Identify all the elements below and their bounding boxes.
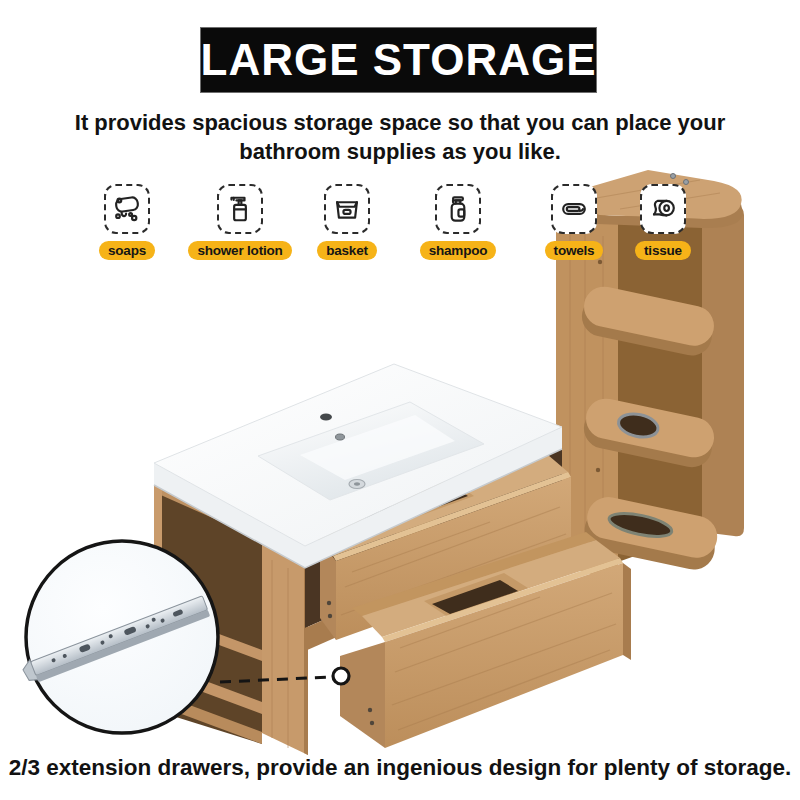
callout-dot <box>333 668 349 684</box>
banner-title: LARGE STORAGE <box>201 35 597 85</box>
soap-icon <box>104 184 150 234</box>
feature-label: shampoo <box>420 241 497 260</box>
lotion-bottle-icon <box>217 184 263 234</box>
feature-label: towels <box>545 241 604 260</box>
feature-label: soaps <box>99 241 155 260</box>
feature-towels: towels <box>528 184 620 260</box>
subtitle-line-1: It provides spacious storage space so th… <box>0 108 800 137</box>
subtitle-line-2: bathroom supplies as you like. <box>0 137 800 166</box>
feature-tissue: tissue <box>617 184 709 260</box>
feature-label: basket <box>317 241 377 260</box>
product-infographic: LARGE STORAGE It provides spacious stora… <box>0 0 800 800</box>
feature-shower-lotion: shower lotion <box>194 184 286 260</box>
towel-icon <box>551 184 597 234</box>
subtitle: It provides spacious storage space so th… <box>0 108 800 166</box>
shampoo-bottle-icon <box>435 184 481 234</box>
overflow-cap <box>336 434 345 440</box>
feature-basket: basket <box>301 184 393 260</box>
toilet-paper-icon <box>640 184 686 234</box>
feature-label: shower lotion <box>188 241 291 260</box>
banner: LARGE STORAGE <box>200 27 597 93</box>
feature-label: tissue <box>635 241 691 260</box>
basket-icon <box>324 184 370 234</box>
drawer-slide-inset <box>20 541 218 733</box>
feature-soaps: soaps <box>81 184 173 260</box>
faucet-hole <box>320 414 332 421</box>
feature-shampoo: shampoo <box>412 184 504 260</box>
caption: 2/3 extension drawers, provide an ingeni… <box>0 755 800 781</box>
